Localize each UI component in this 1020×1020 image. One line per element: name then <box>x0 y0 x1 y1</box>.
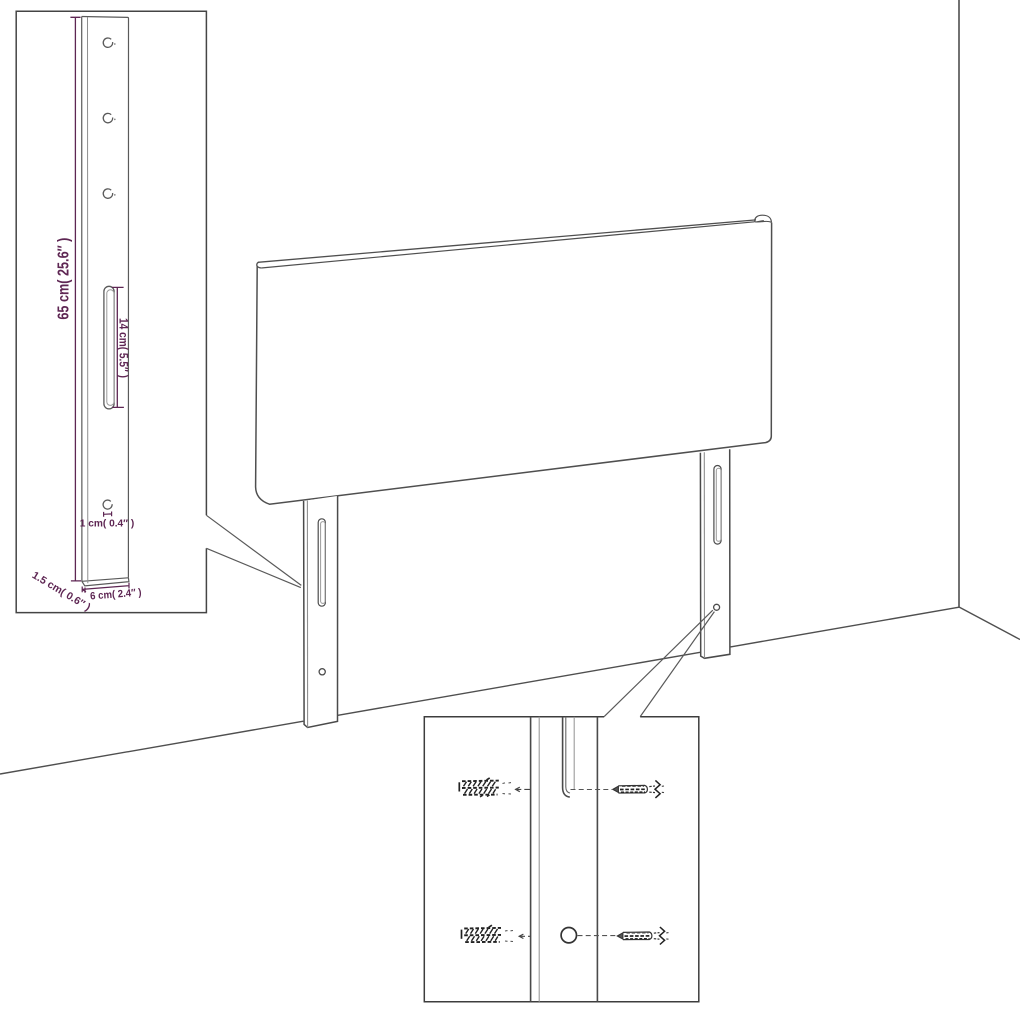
svg-text:65 cm( 25.6″ ): 65 cm( 25.6″ ) <box>56 238 73 320</box>
svg-text:14 cm( 5.5″ ): 14 cm( 5.5″ ) <box>116 318 130 378</box>
svg-text:1 cm( 0.4″ ): 1 cm( 0.4″ ) <box>80 518 135 530</box>
svg-text:6 cm( 2.4″ ): 6 cm( 2.4″ ) <box>90 586 142 602</box>
